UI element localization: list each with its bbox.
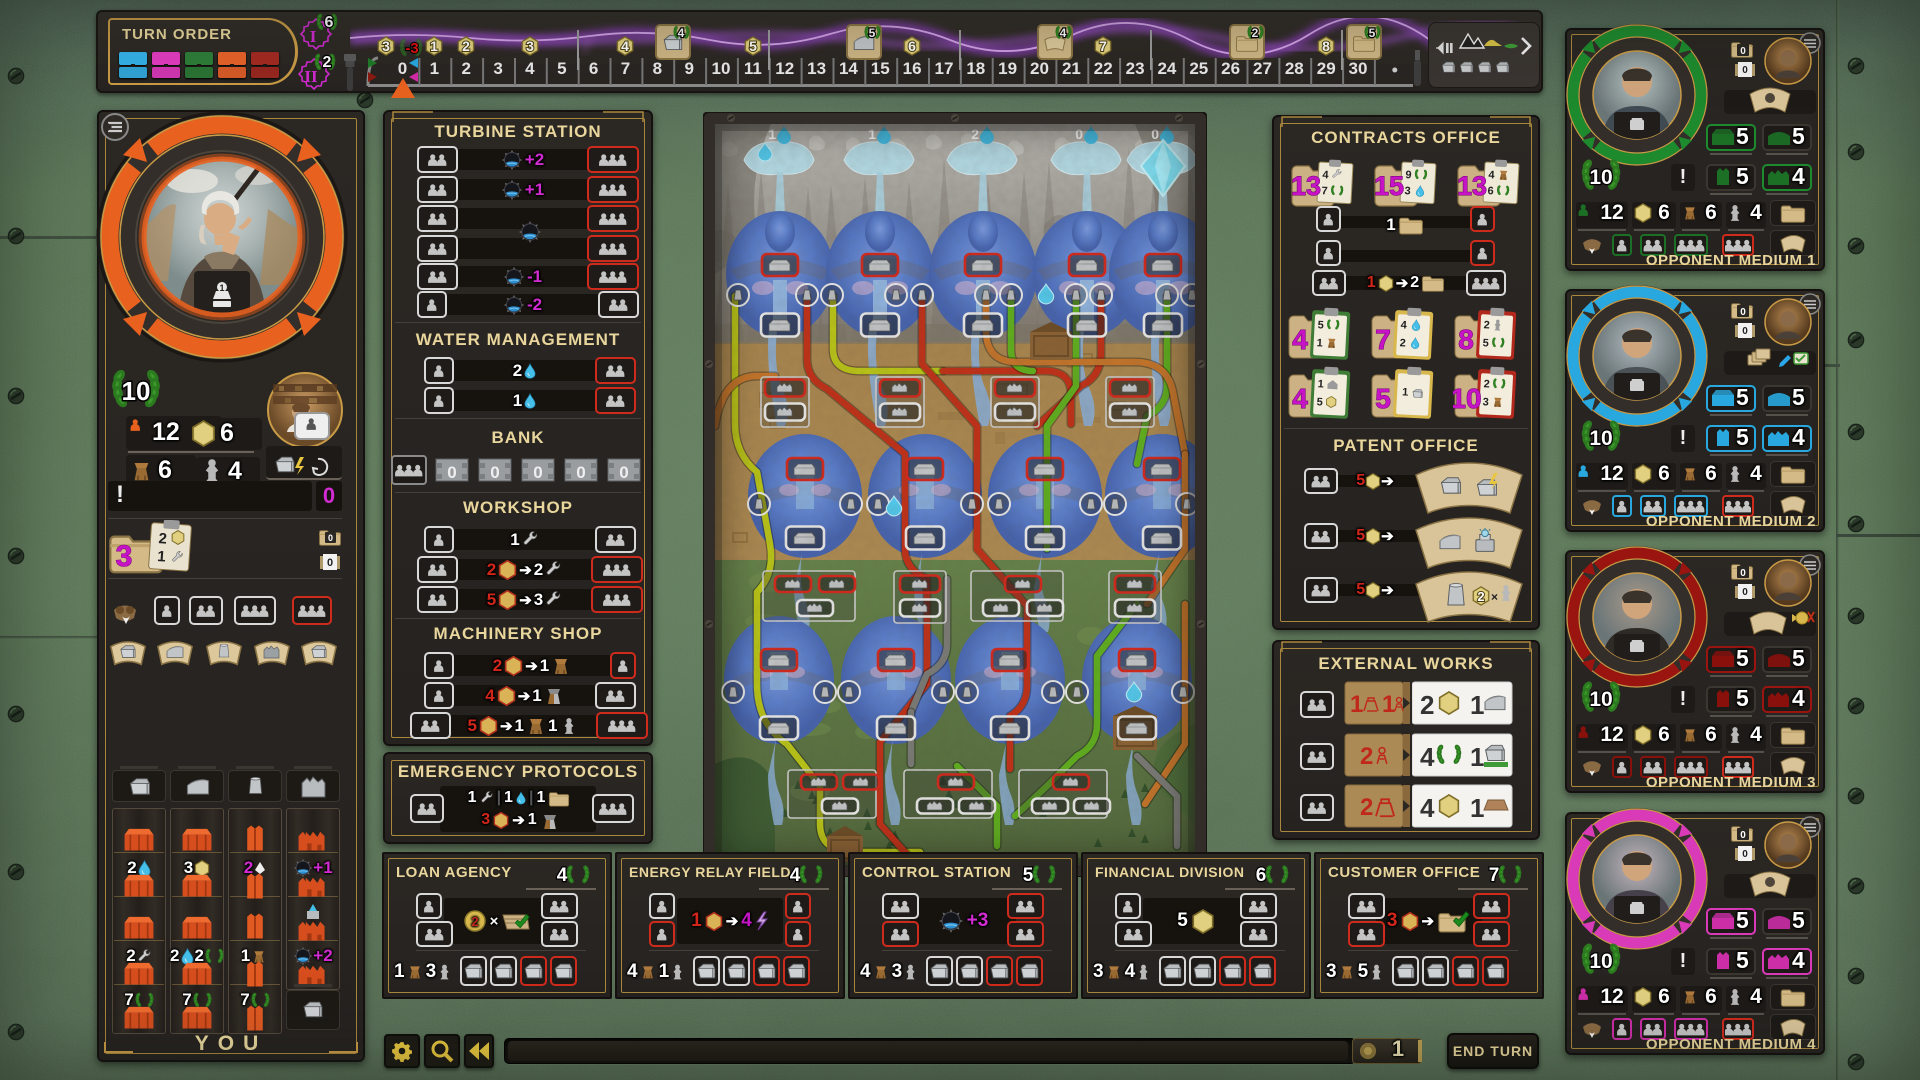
svg-text:19: 19 <box>998 59 1017 78</box>
svg-text:3: 3 <box>116 540 133 573</box>
svg-text:0: 0 <box>1740 568 1746 579</box>
svg-text:2: 2 <box>1399 337 1406 349</box>
svg-text:0: 0 <box>1740 830 1746 841</box>
svg-text:0: 0 <box>447 463 456 482</box>
svg-text:1: 1 <box>1470 742 1484 772</box>
svg-text:26: 26 <box>1221 59 1240 78</box>
svg-text:8: 8 <box>1458 324 1474 355</box>
svg-text:0: 0 <box>1742 587 1748 598</box>
svg-text:1: 1 <box>219 283 224 293</box>
svg-text:6: 6 <box>325 14 334 31</box>
svg-text:2: 2 <box>1477 589 1484 604</box>
svg-text:13: 13 <box>807 59 826 78</box>
svg-text:20: 20 <box>1030 59 1049 78</box>
svg-text:0: 0 <box>619 463 628 482</box>
svg-text:5: 5 <box>1375 383 1391 414</box>
svg-text:2: 2 <box>1360 743 1373 770</box>
svg-text:2: 2 <box>1251 26 1258 40</box>
svg-text:13: 13 <box>1457 171 1487 201</box>
svg-text:0: 0 <box>1740 307 1746 318</box>
svg-text:0: 0 <box>1742 326 1748 337</box>
svg-text:9: 9 <box>684 59 693 78</box>
svg-text:6: 6 <box>589 59 598 78</box>
svg-text:5: 5 <box>749 38 757 54</box>
svg-text:5: 5 <box>1482 337 1489 349</box>
svg-text:24: 24 <box>1157 59 1176 78</box>
svg-text:14: 14 <box>839 59 858 78</box>
svg-text:×: × <box>1491 590 1498 604</box>
svg-text:0: 0 <box>328 533 333 543</box>
svg-text:4: 4 <box>1060 26 1067 40</box>
svg-text:0: 0 <box>1740 46 1746 57</box>
svg-text:5: 5 <box>1317 319 1324 331</box>
svg-text:22: 22 <box>1094 59 1113 78</box>
svg-text:10: 10 <box>712 59 731 78</box>
svg-text:5: 5 <box>557 59 566 78</box>
svg-text:10: 10 <box>1589 166 1612 189</box>
svg-text:2: 2 <box>1420 690 1434 720</box>
svg-text:25: 25 <box>1189 59 1208 78</box>
svg-text:2: 2 <box>1483 378 1490 390</box>
svg-text:1: 1 <box>1402 386 1409 398</box>
svg-text:2: 2 <box>158 530 168 548</box>
svg-text:1: 1 <box>157 548 167 566</box>
svg-text:0: 0 <box>1742 849 1748 860</box>
svg-text:30: 30 <box>1349 59 1368 78</box>
svg-text:4: 4 <box>1420 793 1435 823</box>
svg-text:4: 4 <box>678 26 685 40</box>
svg-text:1: 1 <box>1316 337 1323 349</box>
svg-text:21: 21 <box>1062 59 1081 78</box>
svg-text:13: 13 <box>1291 171 1321 201</box>
svg-text:1: 1 <box>1350 691 1363 718</box>
svg-text:2: 2 <box>323 54 332 71</box>
svg-text:5: 5 <box>869 26 876 40</box>
svg-text:4: 4 <box>1292 324 1308 355</box>
svg-text:7: 7 <box>1321 185 1328 197</box>
svg-text:9: 9 <box>1405 169 1412 181</box>
svg-text:8: 8 <box>1322 38 1330 54</box>
svg-text:4: 4 <box>557 865 568 886</box>
svg-text:10: 10 <box>122 376 151 406</box>
svg-text:10: 10 <box>1589 427 1612 450</box>
svg-text:15: 15 <box>871 59 890 78</box>
svg-text:23: 23 <box>1126 59 1145 78</box>
svg-text:0: 0 <box>533 463 542 482</box>
svg-text:1: 1 <box>1317 378 1324 390</box>
svg-text:7: 7 <box>1099 38 1107 54</box>
svg-text:12: 12 <box>775 59 794 78</box>
svg-text:2: 2 <box>462 38 470 54</box>
svg-text:8: 8 <box>653 59 662 78</box>
svg-text:3: 3 <box>1482 396 1489 408</box>
svg-text:7: 7 <box>1375 324 1391 355</box>
svg-text:10: 10 <box>1453 383 1482 414</box>
svg-text:4: 4 <box>1292 383 1308 414</box>
svg-text:28: 28 <box>1285 59 1304 78</box>
svg-text:16: 16 <box>903 59 922 78</box>
svg-text:1: 1 <box>1382 691 1395 718</box>
svg-text:29: 29 <box>1317 59 1336 78</box>
svg-text:10: 10 <box>1589 688 1612 711</box>
svg-text:5: 5 <box>1023 865 1034 886</box>
svg-text:0: 0 <box>327 557 333 569</box>
svg-text:1: 1 <box>1470 793 1484 823</box>
svg-text:4: 4 <box>790 865 801 886</box>
svg-text:-3: -3 <box>405 40 418 57</box>
svg-text:27: 27 <box>1253 59 1272 78</box>
svg-text:18: 18 <box>966 59 985 78</box>
svg-text:2: 2 <box>461 59 470 78</box>
svg-text:1: 1 <box>430 38 438 54</box>
svg-text:4: 4 <box>525 59 535 78</box>
svg-text:6: 6 <box>1256 865 1267 886</box>
svg-text:0: 0 <box>1742 65 1748 76</box>
svg-text:7: 7 <box>1489 865 1500 886</box>
svg-text:4: 4 <box>1420 742 1435 772</box>
svg-text:6: 6 <box>908 38 916 54</box>
svg-text:11: 11 <box>744 59 762 78</box>
svg-text:2: 2 <box>1360 794 1373 821</box>
svg-text:0: 0 <box>490 463 499 482</box>
svg-text:2: 2 <box>471 914 478 929</box>
svg-text:3: 3 <box>382 38 390 54</box>
svg-text:10: 10 <box>1589 950 1612 973</box>
svg-text:6: 6 <box>1487 185 1494 197</box>
svg-text:3: 3 <box>526 38 534 54</box>
svg-text:3: 3 <box>1404 185 1411 197</box>
svg-text:5: 5 <box>1369 26 1376 40</box>
svg-text:0: 0 <box>576 463 585 482</box>
svg-text:2: 2 <box>1483 319 1490 331</box>
svg-text:1: 1 <box>1470 690 1484 720</box>
svg-text:15: 15 <box>1374 171 1404 201</box>
svg-text:7: 7 <box>621 59 630 78</box>
svg-text:17: 17 <box>935 59 954 78</box>
svg-text:5: 5 <box>1316 396 1323 408</box>
svg-text:1: 1 <box>430 59 439 78</box>
svg-text:4: 4 <box>622 38 630 54</box>
svg-text:3: 3 <box>493 59 502 78</box>
